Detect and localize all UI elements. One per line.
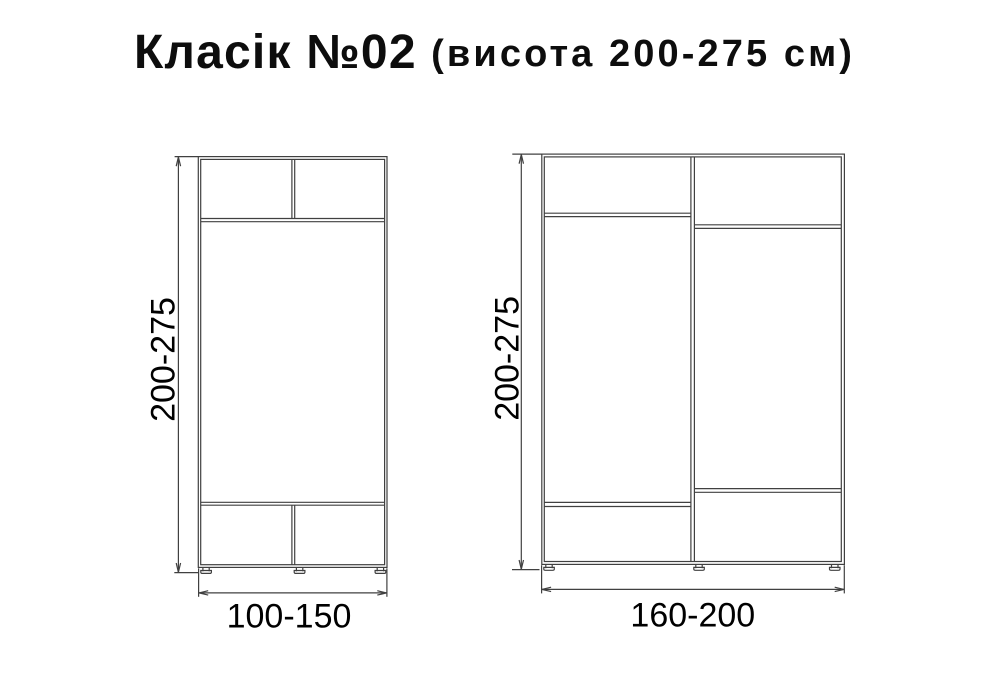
svg-text:100-150: 100-150: [227, 598, 352, 636]
svg-text:200-275: 200-275: [488, 296, 526, 421]
svg-text:160-200: 160-200: [630, 597, 755, 635]
svg-text:200-275: 200-275: [144, 297, 182, 422]
